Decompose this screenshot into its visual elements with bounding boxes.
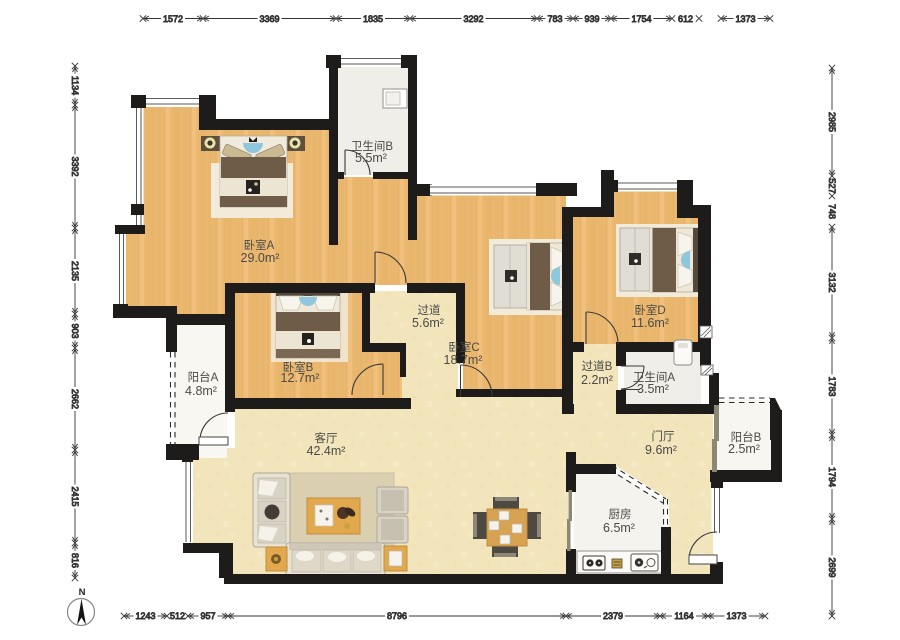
svg-text:过道B: 过道B [582, 359, 613, 373]
svg-text:783: 783 [547, 14, 562, 24]
svg-text:2.5m²: 2.5m² [728, 442, 760, 456]
svg-text:1373: 1373 [726, 611, 746, 621]
svg-text:4.8m²: 4.8m² [185, 384, 217, 398]
svg-text:3.5m²: 3.5m² [637, 382, 669, 396]
svg-text:卧室A: 卧室A [244, 238, 275, 252]
svg-text:2985: 2985 [827, 112, 837, 132]
svg-text:卧室D: 卧室D [634, 303, 665, 317]
svg-text:1754: 1754 [631, 14, 651, 24]
svg-text:3392: 3392 [70, 156, 80, 176]
svg-text:1572: 1572 [163, 14, 183, 24]
svg-text:阳台A: 阳台A [188, 370, 219, 384]
svg-text:527: 527 [827, 178, 837, 193]
svg-text:3132: 3132 [827, 272, 837, 292]
svg-text:1134: 1134 [70, 76, 80, 95]
svg-text:1243: 1243 [135, 611, 155, 621]
svg-text:3292: 3292 [463, 14, 483, 24]
svg-text:1794: 1794 [827, 467, 837, 487]
svg-text:厨房: 厨房 [609, 508, 632, 521]
svg-text:816: 816 [70, 553, 80, 568]
svg-text:2415: 2415 [70, 486, 80, 506]
svg-text:1164: 1164 [674, 611, 693, 621]
svg-text:客厅: 客厅 [315, 431, 338, 445]
svg-text:2662: 2662 [70, 389, 80, 409]
svg-text:1783: 1783 [827, 376, 837, 396]
svg-text:5.6m²: 5.6m² [412, 316, 444, 330]
svg-text:卧室C: 卧室C [448, 340, 479, 354]
svg-text:2699: 2699 [827, 557, 837, 577]
svg-text:18.7m²: 18.7m² [444, 353, 483, 367]
svg-text:1835: 1835 [363, 14, 383, 24]
svg-text:42.4m²: 42.4m² [307, 444, 346, 458]
svg-text:2135: 2135 [70, 261, 80, 281]
svg-text:6.5m²: 6.5m² [603, 521, 635, 535]
svg-text:512: 512 [170, 611, 185, 621]
svg-text:过道: 过道 [418, 303, 441, 317]
svg-text:29.0m²: 29.0m² [241, 251, 280, 265]
svg-text:5.5m²: 5.5m² [355, 151, 387, 165]
svg-text:1373: 1373 [735, 14, 755, 24]
svg-text:3369: 3369 [259, 14, 279, 24]
svg-text:903: 903 [70, 323, 80, 338]
svg-text:12.7m²: 12.7m² [281, 371, 320, 385]
svg-text:612: 612 [678, 14, 693, 24]
svg-text:门厅: 门厅 [652, 429, 675, 443]
svg-text:9.6m²: 9.6m² [645, 443, 677, 457]
svg-text:939: 939 [584, 14, 599, 24]
svg-text:8796: 8796 [387, 611, 407, 621]
svg-text:2.2m²: 2.2m² [581, 373, 613, 387]
svg-text:11.6m²: 11.6m² [631, 316, 669, 330]
svg-text:748: 748 [827, 204, 837, 219]
svg-text:2379: 2379 [603, 611, 623, 621]
svg-text:957: 957 [200, 611, 215, 621]
svg-text:N: N [79, 587, 86, 598]
